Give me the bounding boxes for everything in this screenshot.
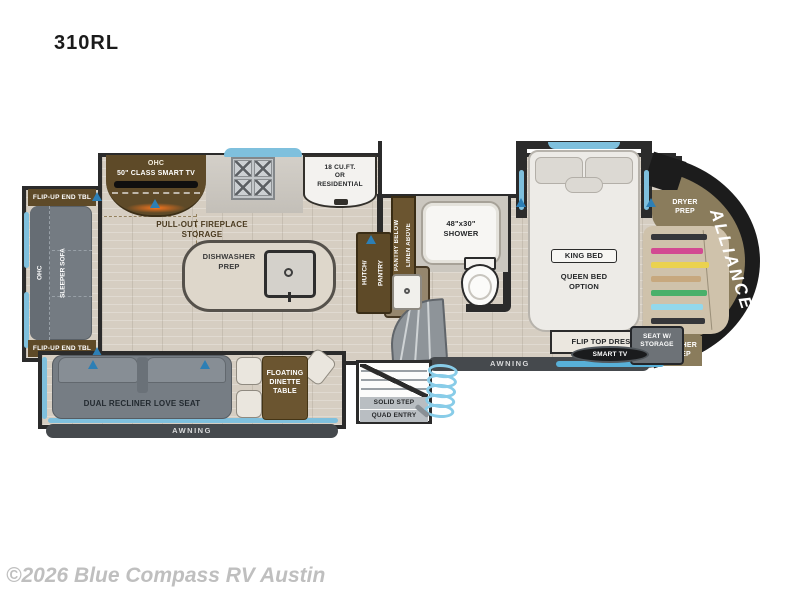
hanging-clothes-icon xyxy=(651,318,705,324)
fridge-line1: 18 CU.FT. xyxy=(305,164,375,172)
power-cord-coil-icon xyxy=(422,363,461,422)
exterior-notch xyxy=(378,141,520,198)
recliner-backrest xyxy=(58,357,138,383)
hanging-clothes-icon xyxy=(651,276,701,282)
bed-head-window xyxy=(548,142,620,149)
dinette-line3: TABLE xyxy=(263,387,307,396)
hanging-clothes-icon xyxy=(651,304,703,310)
dinette-line1: FLOATING xyxy=(263,369,307,378)
vent-icon xyxy=(150,199,160,208)
faucet-handle xyxy=(288,292,291,302)
closet-rod xyxy=(703,230,713,330)
queen-option-line2: OPTION xyxy=(540,282,628,292)
stair-step-line xyxy=(414,304,420,362)
rear-slide-window xyxy=(24,212,29,268)
sleeper-sofa-label: SLEEPER SOFA xyxy=(54,206,72,340)
toilet-seat xyxy=(468,274,492,300)
tv-screen-bar xyxy=(114,181,198,188)
vent-icon xyxy=(366,235,376,244)
fridge-line2: OR xyxy=(305,172,375,180)
hutch-label-col1: HUTCH/ xyxy=(357,236,373,310)
floating-dinette-table: FLOATING DINETTE TABLE xyxy=(262,356,308,420)
fireplace-storage-label: PULL-OUT FIREPLACE STORAGE xyxy=(100,220,304,241)
dishwasher-line1: DISHWASHER xyxy=(190,252,268,262)
awning-label: AWNING xyxy=(490,359,530,368)
awning-label: AWNING xyxy=(172,426,212,435)
entry-steps: SOLID STEP QUAD ENTRY xyxy=(356,360,432,424)
fireplace-line2: STORAGE xyxy=(100,230,304,240)
hanging-clothes-icon xyxy=(651,290,707,296)
dishwasher-prep-label: DISHWASHER PREP xyxy=(190,252,268,272)
living-slide-window xyxy=(42,357,47,419)
step-diagonal xyxy=(360,364,428,397)
flip-up-end-table-top: FLIP-UP END TBL xyxy=(28,189,96,206)
faucet-icon xyxy=(404,288,410,294)
dinette-line2: DINETTE xyxy=(263,378,307,387)
fridge-handle xyxy=(334,199,348,205)
loveseat-console xyxy=(137,357,148,393)
pantry-label-col2: LINEN ABOVE xyxy=(403,198,415,292)
fridge-line3: RESIDENTIAL xyxy=(305,181,375,189)
shower: 48"x30" SHOWER xyxy=(421,201,501,265)
queen-option-line1: QUEEN BED xyxy=(540,272,628,282)
burner-icon xyxy=(254,179,272,196)
stair-step-line xyxy=(399,307,411,362)
hanging-clothes-icon xyxy=(651,248,703,254)
loveseat-label: DUAL RECLINER LOVE SEAT xyxy=(56,399,228,409)
quad-entry-label: QUAD ENTRY xyxy=(360,410,428,422)
burner-icon xyxy=(234,160,252,177)
pillow xyxy=(565,177,603,193)
burner-icon xyxy=(254,160,272,177)
burner-icon xyxy=(234,179,252,196)
reading-light-icon xyxy=(516,198,526,207)
dinette-chair xyxy=(236,390,262,418)
cabinet-dash-line xyxy=(112,192,200,194)
vent-icon xyxy=(88,360,98,369)
faucet-icon xyxy=(284,268,293,277)
model-label: 310RL xyxy=(54,32,119,55)
king-bed-label: KING BED xyxy=(551,249,617,263)
hanging-clothes-icon xyxy=(651,234,707,240)
dishwasher-line2: PREP xyxy=(190,262,268,272)
dryer-prep-label: DRYER PREP xyxy=(660,198,710,216)
floorplan-page: 310RL ALLIANCE DRYER PREP WASHER PREP KI… xyxy=(0,0,800,600)
sofa-ohc-label: OHC xyxy=(30,206,50,340)
stair-step-line xyxy=(427,301,431,361)
hutch-label-col2: PANTRY xyxy=(373,236,389,310)
seat-line1: SEAT W/ xyxy=(632,333,682,341)
shower-size-line: 48"x30" xyxy=(423,219,499,229)
bedroom-smart-tv: SMART TV xyxy=(571,346,649,363)
tv-label: 50" CLASS SMART TV xyxy=(106,169,206,178)
reading-light-icon xyxy=(646,198,656,207)
pantry-label-col1: PANTRY BELOW xyxy=(391,198,403,292)
dryer-prep-line1: DRYER xyxy=(660,198,710,207)
dinette-chair xyxy=(236,357,262,385)
vent-icon xyxy=(200,360,210,369)
watermark: ©2026 Blue Compass RV Austin xyxy=(6,564,325,588)
fireplace-line1: PULL-OUT FIREPLACE xyxy=(100,220,304,230)
vent-icon xyxy=(92,192,102,201)
awning-bar-left: AWNING xyxy=(46,424,338,438)
recliner-backrest xyxy=(146,357,226,383)
hanging-clothes-icon xyxy=(651,262,709,268)
kitchen-window xyxy=(224,148,302,157)
entertainment-ohc-label: OHC xyxy=(106,159,206,168)
shower-word-line: SHOWER xyxy=(423,229,499,239)
dryer-prep-line2: PREP xyxy=(660,207,710,216)
